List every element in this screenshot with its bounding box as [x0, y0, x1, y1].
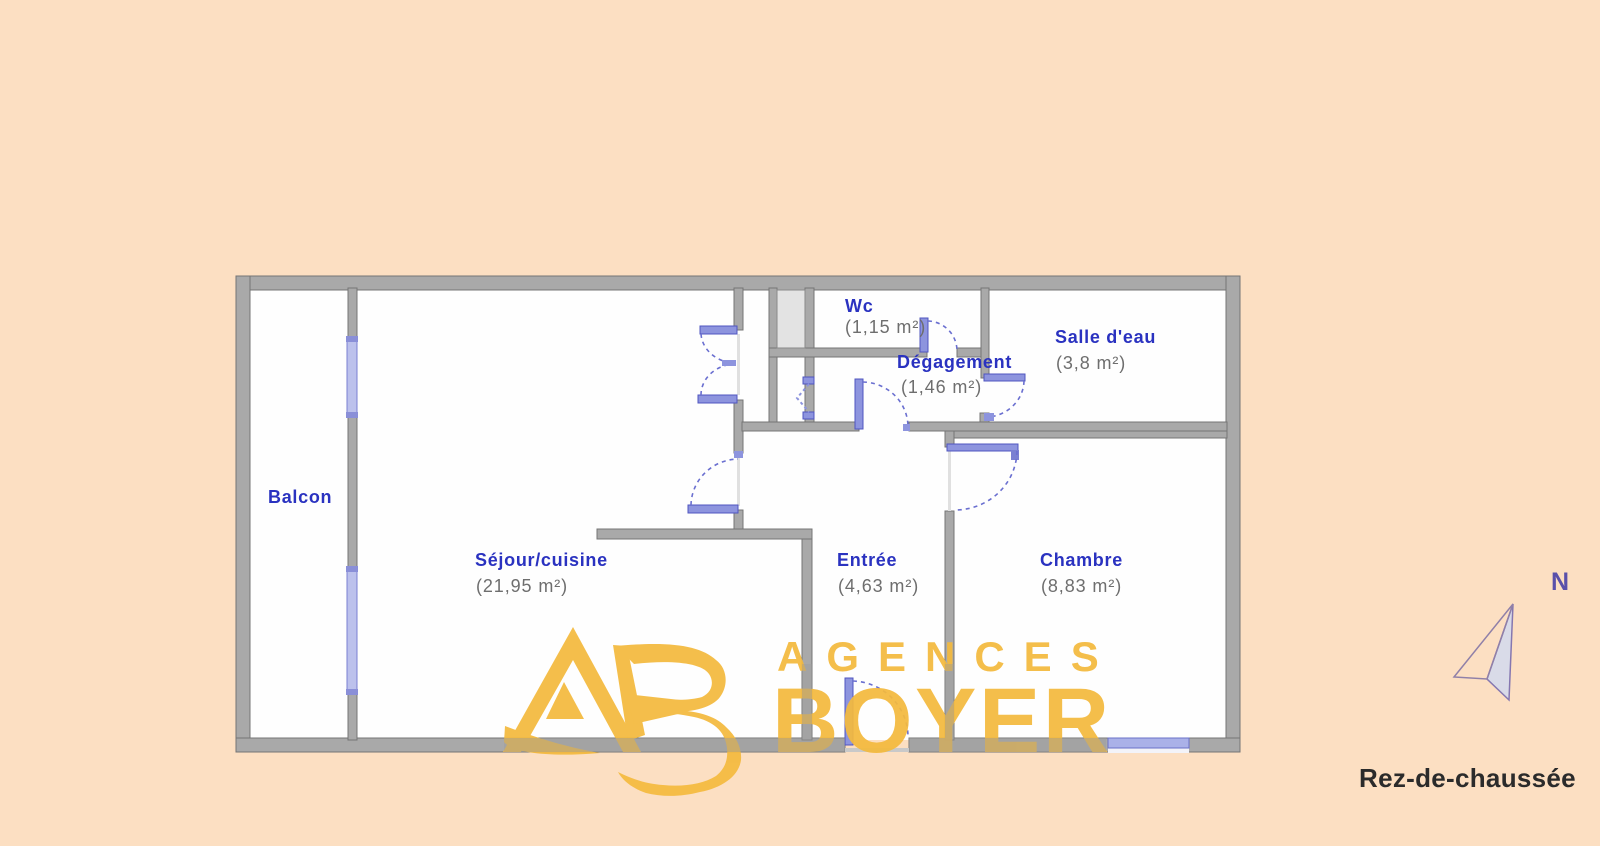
svg-text:(1,46 m²): (1,46 m²): [901, 377, 982, 397]
svg-text:Wc: Wc: [845, 296, 873, 316]
svg-text:N: N: [1551, 568, 1569, 596]
svg-text:(8,83 m²): (8,83 m²): [1041, 576, 1122, 596]
svg-text:Rez-de-chaussée: Rez-de-chaussée: [1359, 763, 1576, 793]
svg-text:(3,8 m²): (3,8 m²): [1056, 353, 1126, 373]
svg-text:Dégagement: Dégagement: [897, 352, 1012, 372]
svg-text:Chambre: Chambre: [1040, 550, 1123, 570]
svg-text:Entrée: Entrée: [837, 550, 897, 570]
svg-text:Balcon: Balcon: [268, 487, 332, 507]
svg-text:BOYER: BOYER: [772, 670, 1112, 772]
svg-text:Salle d'eau: Salle d'eau: [1055, 327, 1156, 347]
svg-text:(1,15 m²): (1,15 m²): [845, 317, 926, 337]
svg-text:(4,63 m²): (4,63 m²): [838, 576, 919, 596]
svg-text:Séjour/cuisine: Séjour/cuisine: [475, 550, 608, 570]
svg-text:(21,95 m²): (21,95 m²): [476, 576, 568, 596]
